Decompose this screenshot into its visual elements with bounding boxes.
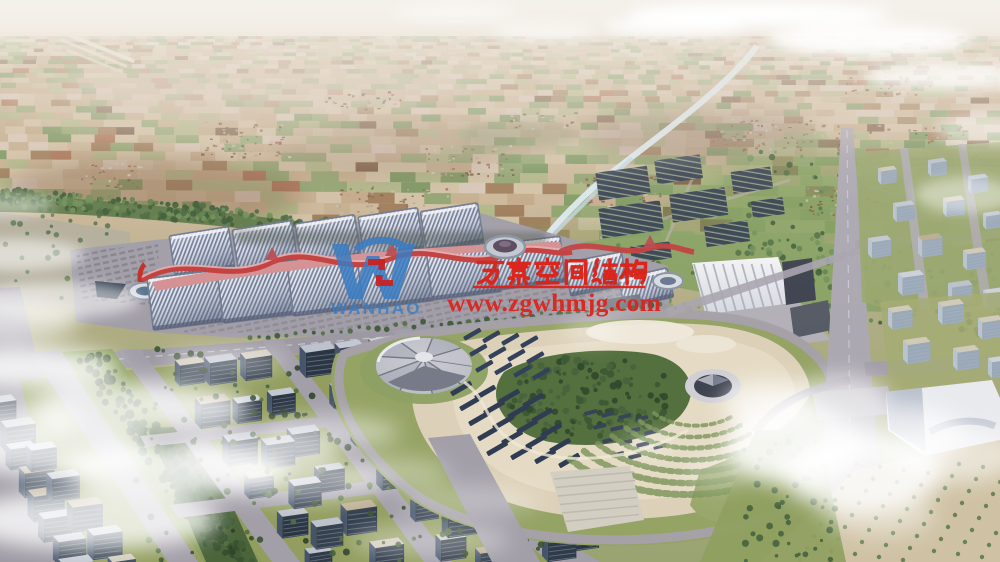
svg-text:www.zgwhmjg.com: www.zgwhmjg.com <box>447 288 661 317</box>
svg-text:WANHAO: WANHAO <box>331 299 422 318</box>
